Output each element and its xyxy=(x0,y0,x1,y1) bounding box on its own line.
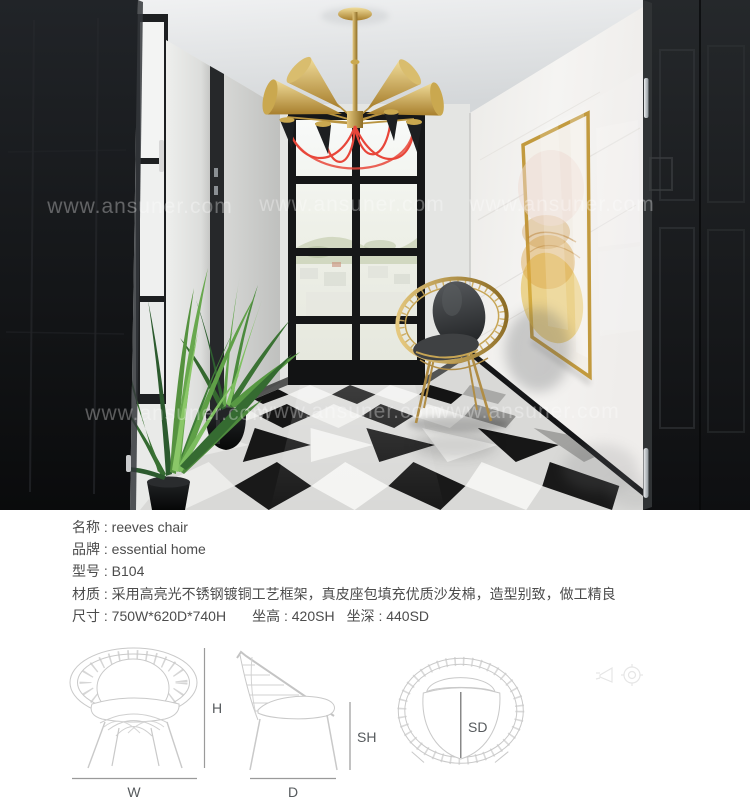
spec-value: 440SD xyxy=(386,608,429,624)
watermark: www.ansuner.com xyxy=(433,400,619,423)
spec-separator: : xyxy=(100,541,112,557)
right-door-handle xyxy=(644,448,649,498)
product-specs: 名称 : reeves chair品牌 : essential home型号 :… xyxy=(72,516,732,627)
stem-collar xyxy=(351,60,360,65)
door-bottom-rail xyxy=(288,360,425,385)
spec-label: 名称 xyxy=(72,519,100,535)
chair-wall-shadow xyxy=(505,308,571,392)
left-door-slab xyxy=(0,0,138,510)
watermark: www.ansuner.com xyxy=(46,195,232,218)
spec-value: reeves chair xyxy=(112,519,188,535)
hub xyxy=(347,111,363,128)
view-roof xyxy=(332,262,341,267)
spec-value: 750W*620D*740H xyxy=(112,608,226,624)
view-building xyxy=(324,272,346,286)
mullion-h xyxy=(288,316,425,324)
spec-separator: : xyxy=(100,563,112,579)
side-view-drawing xyxy=(237,652,337,770)
spec-row: 材质 : 采用高亮光不锈钢镀铜工艺框架，真皮座包填充优质沙发棉，造型别致，做工精… xyxy=(72,583,732,605)
spec-label: 坐深 xyxy=(347,608,375,624)
spec-separator: : xyxy=(280,608,292,624)
watermark: www.ansuner.com xyxy=(84,402,270,425)
product-photo: www.ansuner.com www.ansuner.com www.ansu… xyxy=(0,0,750,510)
watermark: www.ansuner.com xyxy=(258,193,444,216)
spec-value: essential home xyxy=(112,541,206,557)
spec-separator: : xyxy=(100,519,112,535)
spec-label: 品牌 xyxy=(72,541,100,557)
spec-row: 型号 : B104 xyxy=(72,560,732,582)
dimension-drawings: W H D SH SD xyxy=(0,635,750,810)
target-icon-inner xyxy=(629,672,636,679)
pot-rim xyxy=(147,477,190,488)
spec-separator: : xyxy=(375,608,387,624)
mullion-h xyxy=(288,248,425,256)
height-label: H xyxy=(212,700,222,716)
width-label: W xyxy=(127,784,141,800)
spec-label: 型号 xyxy=(72,563,100,579)
left-door xyxy=(0,0,143,510)
spec-label: 尺寸 xyxy=(72,608,100,624)
stem xyxy=(353,12,358,118)
frosted-pane xyxy=(140,22,164,158)
seat-depth-label: SD xyxy=(468,719,487,735)
spec-label: 坐高 xyxy=(252,608,280,624)
frosted-pane xyxy=(140,164,164,296)
wall-reflection xyxy=(596,120,640,247)
mullion-h xyxy=(288,176,425,184)
spec-row: 尺寸 : 750W*620D*740H坐高 : 420SH坐深 : 440SD xyxy=(72,605,732,627)
faint-watermark-icons xyxy=(596,664,643,686)
right-door xyxy=(643,0,750,510)
spec-value: B104 xyxy=(112,563,145,579)
front-view-drawing xyxy=(70,648,197,768)
horn-icon xyxy=(596,668,612,682)
interior-scene: www.ansuner.com www.ansuner.com www.ansu… xyxy=(0,0,750,510)
hinge xyxy=(214,186,218,195)
spec-value: 采用高亮光不锈钢镀铜工艺框架，真皮座包填充优质沙发棉，造型别致，做工精良 xyxy=(112,586,616,602)
spec-label: 材质 xyxy=(72,586,100,602)
spec-separator: : xyxy=(100,586,112,602)
target-icon xyxy=(624,667,640,683)
hinge xyxy=(214,168,218,177)
cushion-highlight xyxy=(442,284,462,316)
right-door-jamb xyxy=(643,0,652,510)
shaded-wall xyxy=(224,74,288,412)
window-handle xyxy=(159,140,164,172)
depth-label: D xyxy=(288,784,298,800)
product-page: www.ansuner.com www.ansuner.com www.ansu… xyxy=(0,0,750,810)
seat-height-label: SH xyxy=(357,729,376,745)
dimension-drawings-svg: W H D SH SD xyxy=(0,635,750,810)
wall-reflection xyxy=(598,246,642,336)
watermark: www.ansuner.com xyxy=(468,193,654,216)
view-building xyxy=(394,274,410,284)
watermark: www.ansuner.com xyxy=(256,400,442,423)
left-door-handle xyxy=(126,455,131,472)
spec-value: 420SH xyxy=(292,608,335,624)
door-hinge xyxy=(644,78,649,118)
spec-separator: : xyxy=(100,608,112,624)
view-building xyxy=(300,268,318,279)
spec-row: 品牌 : essential home xyxy=(72,538,732,560)
view-building xyxy=(368,266,388,278)
spec-row: 名称 : reeves chair xyxy=(72,516,732,538)
